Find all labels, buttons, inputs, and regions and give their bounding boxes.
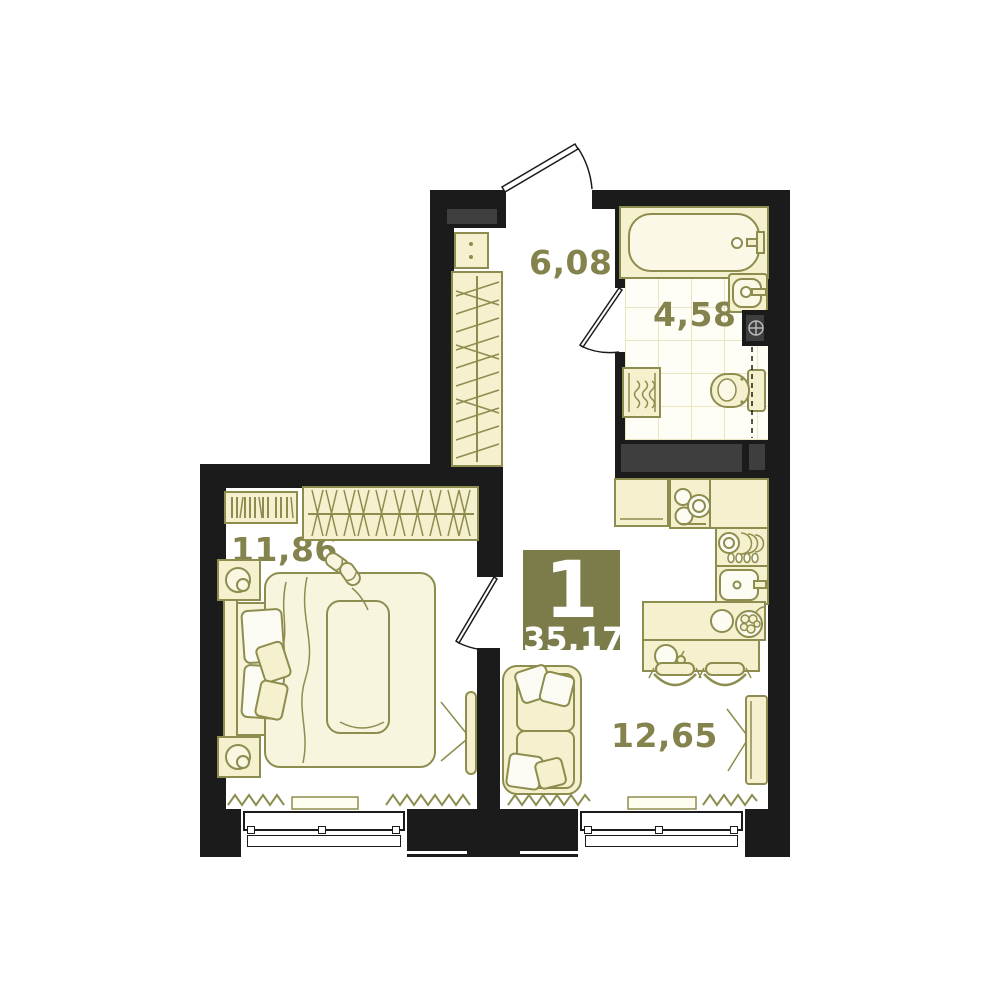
wall-hall-bedroom-column	[477, 464, 503, 577]
window-bedroom-mullion-mid	[318, 826, 326, 834]
bathtub	[620, 207, 768, 278]
kitchen-sink	[716, 566, 768, 604]
fridge-label: ***	[620, 491, 668, 520]
wall-bedroom-living	[477, 648, 500, 810]
bathroom-area-label: 4,58	[653, 295, 736, 334]
balcony-edge-right	[520, 851, 742, 854]
bedroom-area-label: 11,86	[231, 530, 338, 569]
vent-shaft-left	[621, 444, 742, 472]
window-bedroom-mullion-left	[247, 826, 255, 834]
window-living-mullion-mid	[655, 826, 663, 834]
living-tv	[727, 696, 767, 784]
entrance-mat	[447, 209, 497, 224]
bed	[224, 573, 435, 767]
shoe-cabinet	[455, 233, 488, 268]
hallway-area-label: 6,08	[529, 243, 612, 282]
wall-right-outer	[768, 190, 790, 857]
window-bedroom-sill	[247, 835, 401, 847]
wall-bath-partition-lower	[615, 352, 625, 442]
room-count: 1	[523, 558, 620, 624]
wall-top-right	[592, 190, 790, 209]
cooktop	[670, 479, 710, 528]
wall-left-outer	[200, 464, 226, 857]
chair	[649, 663, 701, 685]
kitchen-counter	[710, 479, 768, 528]
sill-shelf-bedroom	[292, 797, 358, 809]
dish-rack	[716, 528, 768, 566]
dining-table	[643, 602, 766, 671]
balcony-edge-left	[241, 851, 467, 854]
bedroom-tv	[441, 692, 476, 774]
sofa	[503, 664, 581, 794]
apartment-badge: 1 35,17	[523, 550, 620, 650]
living-area-label: 12,65	[611, 716, 718, 755]
wall-hallway-left	[430, 190, 454, 466]
window-bedroom-mullion-right	[392, 826, 400, 834]
bathroom-door	[580, 288, 622, 353]
chair	[699, 663, 751, 685]
bedroom-door	[456, 577, 497, 650]
floor-plan: 6,08 4,58 11,86 12,65 1 35,17 ***	[0, 0, 1000, 1000]
book-shelf	[225, 492, 297, 523]
wall-bedroom-top	[200, 464, 503, 488]
hallway-closet	[452, 272, 502, 466]
entrance-door	[502, 144, 592, 192]
wall-bath-partition-upper	[615, 208, 625, 288]
window-living-mullion-right	[730, 826, 738, 834]
vent-shaft-right	[749, 444, 765, 470]
window-living-sill	[585, 835, 738, 847]
total-area: 35,17	[523, 624, 620, 654]
window-living-mullion-left	[584, 826, 592, 834]
sill-shelf-living	[628, 797, 696, 809]
